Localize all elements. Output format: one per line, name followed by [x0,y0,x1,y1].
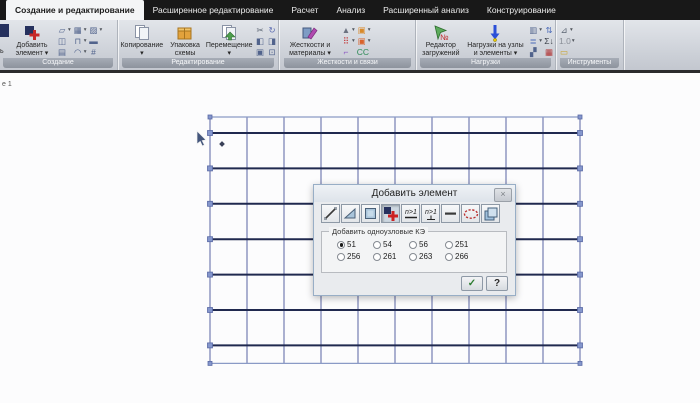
group-create-clipped-button[interactable]: ь [0,22,9,58]
tab-analysis[interactable]: Анализ [327,0,374,20]
model-workspace[interactable]: е 1 Добавить элемент × n>1n>1 Добавить о… [0,73,700,403]
chevron-down-icon: ▾ [368,27,371,33]
create-surface-icon[interactable]: ▱▾ [57,25,71,35]
add-element-button[interactable]: Добавитьэлемент ▾ [9,22,55,57]
chevron-down-icon: ▾ [539,27,542,33]
chevron-down-icon: ▾ [570,27,573,33]
tab-calculation[interactable]: Расчет [282,0,327,20]
load-updown-icon[interactable]: ⇅ [544,25,554,35]
add-element-icon [23,23,41,42]
fe-type-radio-266[interactable]: 266 [445,252,485,261]
volume-element-tool[interactable] [481,204,500,223]
move-button[interactable]: Перемещение▾ [205,22,253,57]
joint-b-icon[interactable]: ▣▾ [357,36,371,46]
package-icon [176,23,194,42]
tab-advanced-editing[interactable]: Расширенное редактирование [144,0,283,20]
ties-cc-icon[interactable]: CC [357,47,371,57]
radio-dot [445,253,453,261]
radio-dot [373,241,381,249]
tab-create-and-edit[interactable]: Создание и редактирование [6,0,144,20]
fe-type-radio-group: 515456251256261263266 [322,232,506,261]
point-marker [219,141,225,147]
fe-type-radio-56[interactable]: 56 [409,240,445,249]
chevron-down-icon: ▾ [352,27,355,33]
units-icon[interactable]: 1.0▾ [559,36,575,46]
joint-a-icon[interactable]: ▣▾ [357,25,371,35]
create-dome-icon[interactable]: ◠▾ [73,47,87,57]
fe-type-radio-251[interactable]: 251 [445,240,485,249]
chevron-down-icon: ▾ [539,38,542,44]
load-table-icon[interactable]: ≣▾ [528,36,542,46]
loads-icon [486,23,504,42]
groupbox-label: Добавить одноузловые КЭ [329,227,428,236]
tab-design[interactable]: Конструирование [478,0,565,20]
create-frame-icon[interactable]: ◫ [57,36,71,46]
copy-icon [133,23,151,42]
radio-dot [337,241,345,249]
node-n1-tool[interactable]: n>1 [421,204,440,223]
chevron-down-icon: ▾ [84,27,87,33]
stiffness-icon [301,23,319,42]
dash-element-tool[interactable] [441,204,460,223]
fe-type-radio-261[interactable]: 261 [373,252,409,261]
copy-button[interactable]: Копирование▾ [119,22,165,57]
group-create-label: Создание [3,58,113,68]
create-hatch-icon[interactable]: ▨▾ [89,25,103,35]
create-solid-icon[interactable]: ▬ [89,36,103,46]
svg-text:n>1: n>1 [405,209,417,216]
radio-dot [337,253,345,261]
group-stiffness-ties-label: Жесткости и связи [284,58,411,68]
load-list-icon[interactable]: ▥▾ [528,25,542,35]
create-truss-icon[interactable]: # [89,47,103,57]
rigid-body-icon[interactable]: ▲▾ [341,25,355,35]
load-red-icon[interactable]: ▦ [544,47,554,57]
ribbon: ьДобавитьэлемент ▾▱▾▦▾▨▾◫⊓▾▬▤◠▾#Создание… [0,20,700,70]
fe-type-radio-51[interactable]: 51 [337,240,373,249]
dialog-footer: ✓ ? [461,276,508,291]
mirror-icon[interactable]: ◨ [267,36,277,46]
ruler-icon[interactable]: ▭ [559,47,575,57]
triangle-element-tool[interactable] [341,204,360,223]
radio-dot [409,253,417,261]
ellipse-element-tool[interactable] [461,204,480,223]
group-loads: №РедакторзагруженийНагрузки на узлыи эле… [417,20,556,70]
help-button[interactable]: ? [486,276,508,291]
group-tools-label: Инструменты [560,58,619,68]
stamp-icon[interactable]: ▣ [255,47,265,57]
measure-icon[interactable]: ⊿▾ [559,25,575,35]
rod-element-tool[interactable] [321,204,340,223]
dialog-title: Добавить элемент [314,185,515,202]
group-tools: ⊿▾1.0▾▭Инструменты [557,20,624,70]
create-building-icon[interactable]: ▤ [57,47,71,57]
loads-on-nodes-button[interactable]: Нагрузки на узлыи элементы ▾ [465,22,527,57]
svg-text:№: № [440,33,449,42]
cut-icon[interactable]: ✂ [255,25,265,35]
chevron-down-icon: ▾ [68,27,71,33]
chevron-down-icon: ▾ [84,38,87,44]
create-arch-icon[interactable]: ⊓▾ [73,36,87,46]
rod-n1-tool[interactable]: n>1 [401,204,420,223]
chevron-down-icon: ▾ [352,38,355,44]
red-dots-icon[interactable]: ⠿▾ [341,36,355,46]
create-mesh-icon[interactable]: ▦▾ [73,25,87,35]
element-type-toolbar: n>1n>1 [321,204,509,223]
load-sum-icon[interactable]: Σ↓ [544,36,554,46]
chevron-down-icon: ▾ [368,38,371,44]
hinge-icon[interactable]: ⌐ [341,47,355,57]
svg-text:n>1: n>1 [425,209,437,216]
app-window: Создание и редактированиеРасширенное ред… [0,0,700,403]
chevron-down-icon: ▾ [100,27,103,33]
fe-type-radio-256[interactable]: 256 [337,252,373,261]
chevron-down-icon: ▾ [572,38,575,44]
copy-fragment-icon[interactable]: ◧ [255,36,265,46]
single-node-fe-groupbox: Добавить одноузловые КЭ 5154562512562612… [321,231,507,273]
loadcase-editor-button[interactable]: №Редакторзагружений [417,22,465,57]
radio-dot [409,241,417,249]
add-element-dialog: Добавить элемент × n>1n>1 Добавить одноу… [313,184,516,296]
move-icon [220,23,238,42]
radio-dot [373,253,381,261]
fe-type-radio-54[interactable]: 54 [373,240,409,249]
fe-type-radio-263[interactable]: 263 [409,252,445,261]
apply-button[interactable]: ✓ [461,276,483,291]
clipped-button-icon [0,24,9,37]
group-editing-label: Редактирование [122,58,274,68]
loadcase-icon: № [432,23,450,42]
stiffness-materials-button[interactable]: Жесткости иматериалы ▾ [281,22,339,57]
group-loads-label: Нагрузки [420,58,551,68]
pack-scheme-button[interactable]: Упаковкасхемы [165,22,206,57]
single-node-element-tool[interactable] [381,204,400,223]
tab-advanced-analysis[interactable]: Расширенный анализ [374,0,478,20]
ribbon-tab-bar: Создание и редактированиеРасширенное ред… [0,0,700,20]
radio-dot [445,241,453,249]
mouse-cursor [197,131,206,146]
chevron-down-icon: ▾ [84,49,87,55]
rotate-icon[interactable]: ↻ [267,25,277,35]
group-stiffness-ties: Жесткости иматериалы ▾▲▾▣▾⠿▾▣▾⌐CCЖесткос… [281,20,416,70]
quad-element-tool[interactable] [361,204,380,223]
close-icon[interactable]: × [494,188,512,202]
group-editing: Копирование▾УпаковкасхемыПеремещение▾✂↻◧… [119,20,279,70]
load-brush-icon[interactable]: ▞ [528,47,542,57]
group-create: ьДобавитьэлемент ▾▱▾▦▾▨▾◫⊓▾▬▤◠▾#Создание [0,20,118,70]
select-region-icon[interactable]: ⊡ [267,47,277,57]
